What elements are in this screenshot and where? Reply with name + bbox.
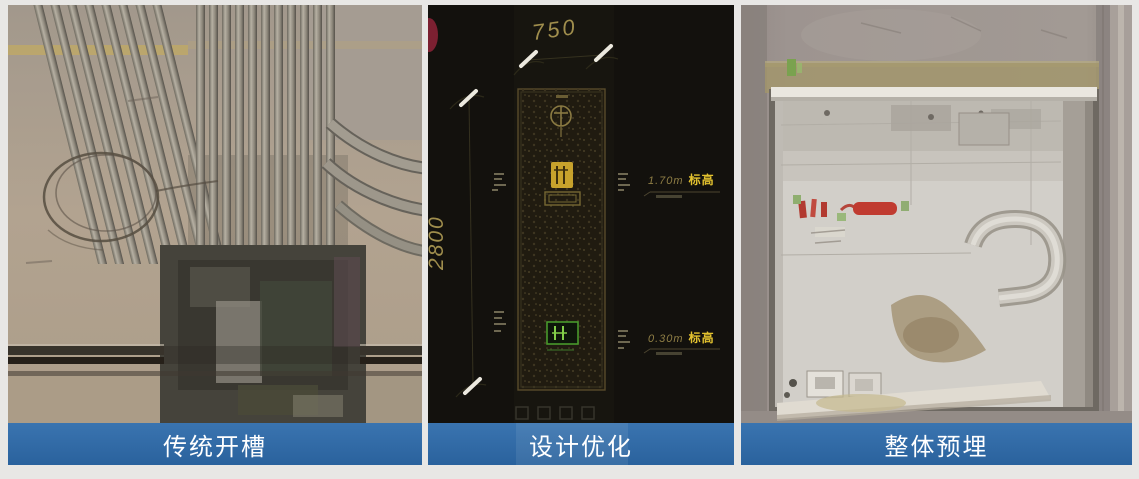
integral-embedding-photo bbox=[741, 5, 1132, 423]
elevation-annotation-upper: 1.70m 标高 bbox=[648, 171, 715, 188]
label-text-integral-embedding: 整体预埋 bbox=[885, 427, 989, 462]
embedded-box-scene bbox=[741, 5, 1132, 423]
design-optimization-drawing: 750 2800 1.70m 标高 0.30m 标高 bbox=[428, 5, 734, 423]
elevation-annotation-lower: 0.30m 标高 bbox=[648, 329, 715, 346]
panel-traditional-grooving: 传统开槽 bbox=[8, 5, 422, 465]
vertical-conduit-group bbox=[196, 5, 335, 277]
horizontal-pipes bbox=[8, 344, 422, 376]
elevation-lower-tag: 标高 bbox=[689, 329, 715, 346]
traditional-grooving-photo bbox=[8, 5, 422, 423]
cad-drawing-scene bbox=[428, 5, 734, 423]
elevation-upper-value: 1.70m bbox=[648, 175, 684, 187]
comparison-figure: 传统开槽 bbox=[0, 0, 1139, 479]
green-mark bbox=[787, 59, 796, 76]
label-traditional-grooving: 传统开槽 bbox=[8, 423, 422, 465]
panel-design-optimization: 750 2800 1.70m 标高 0.30m 标高 设计优化 bbox=[428, 5, 734, 465]
elevation-upper-tag: 标高 bbox=[689, 171, 715, 188]
label-text-traditional-grooving: 传统开槽 bbox=[163, 427, 267, 462]
cad-height-dimension: 2800 bbox=[428, 220, 449, 270]
label-design-optimization: 设计优化 bbox=[428, 423, 734, 465]
elevation-lower-value: 0.30m bbox=[648, 333, 684, 345]
label-integral-embedding: 整体预埋 bbox=[741, 423, 1132, 465]
panel-integral-embedding: 整体预埋 bbox=[741, 5, 1132, 465]
wall-conduits-scene bbox=[8, 5, 422, 423]
label-text-design-optimization: 设计优化 bbox=[529, 427, 633, 462]
